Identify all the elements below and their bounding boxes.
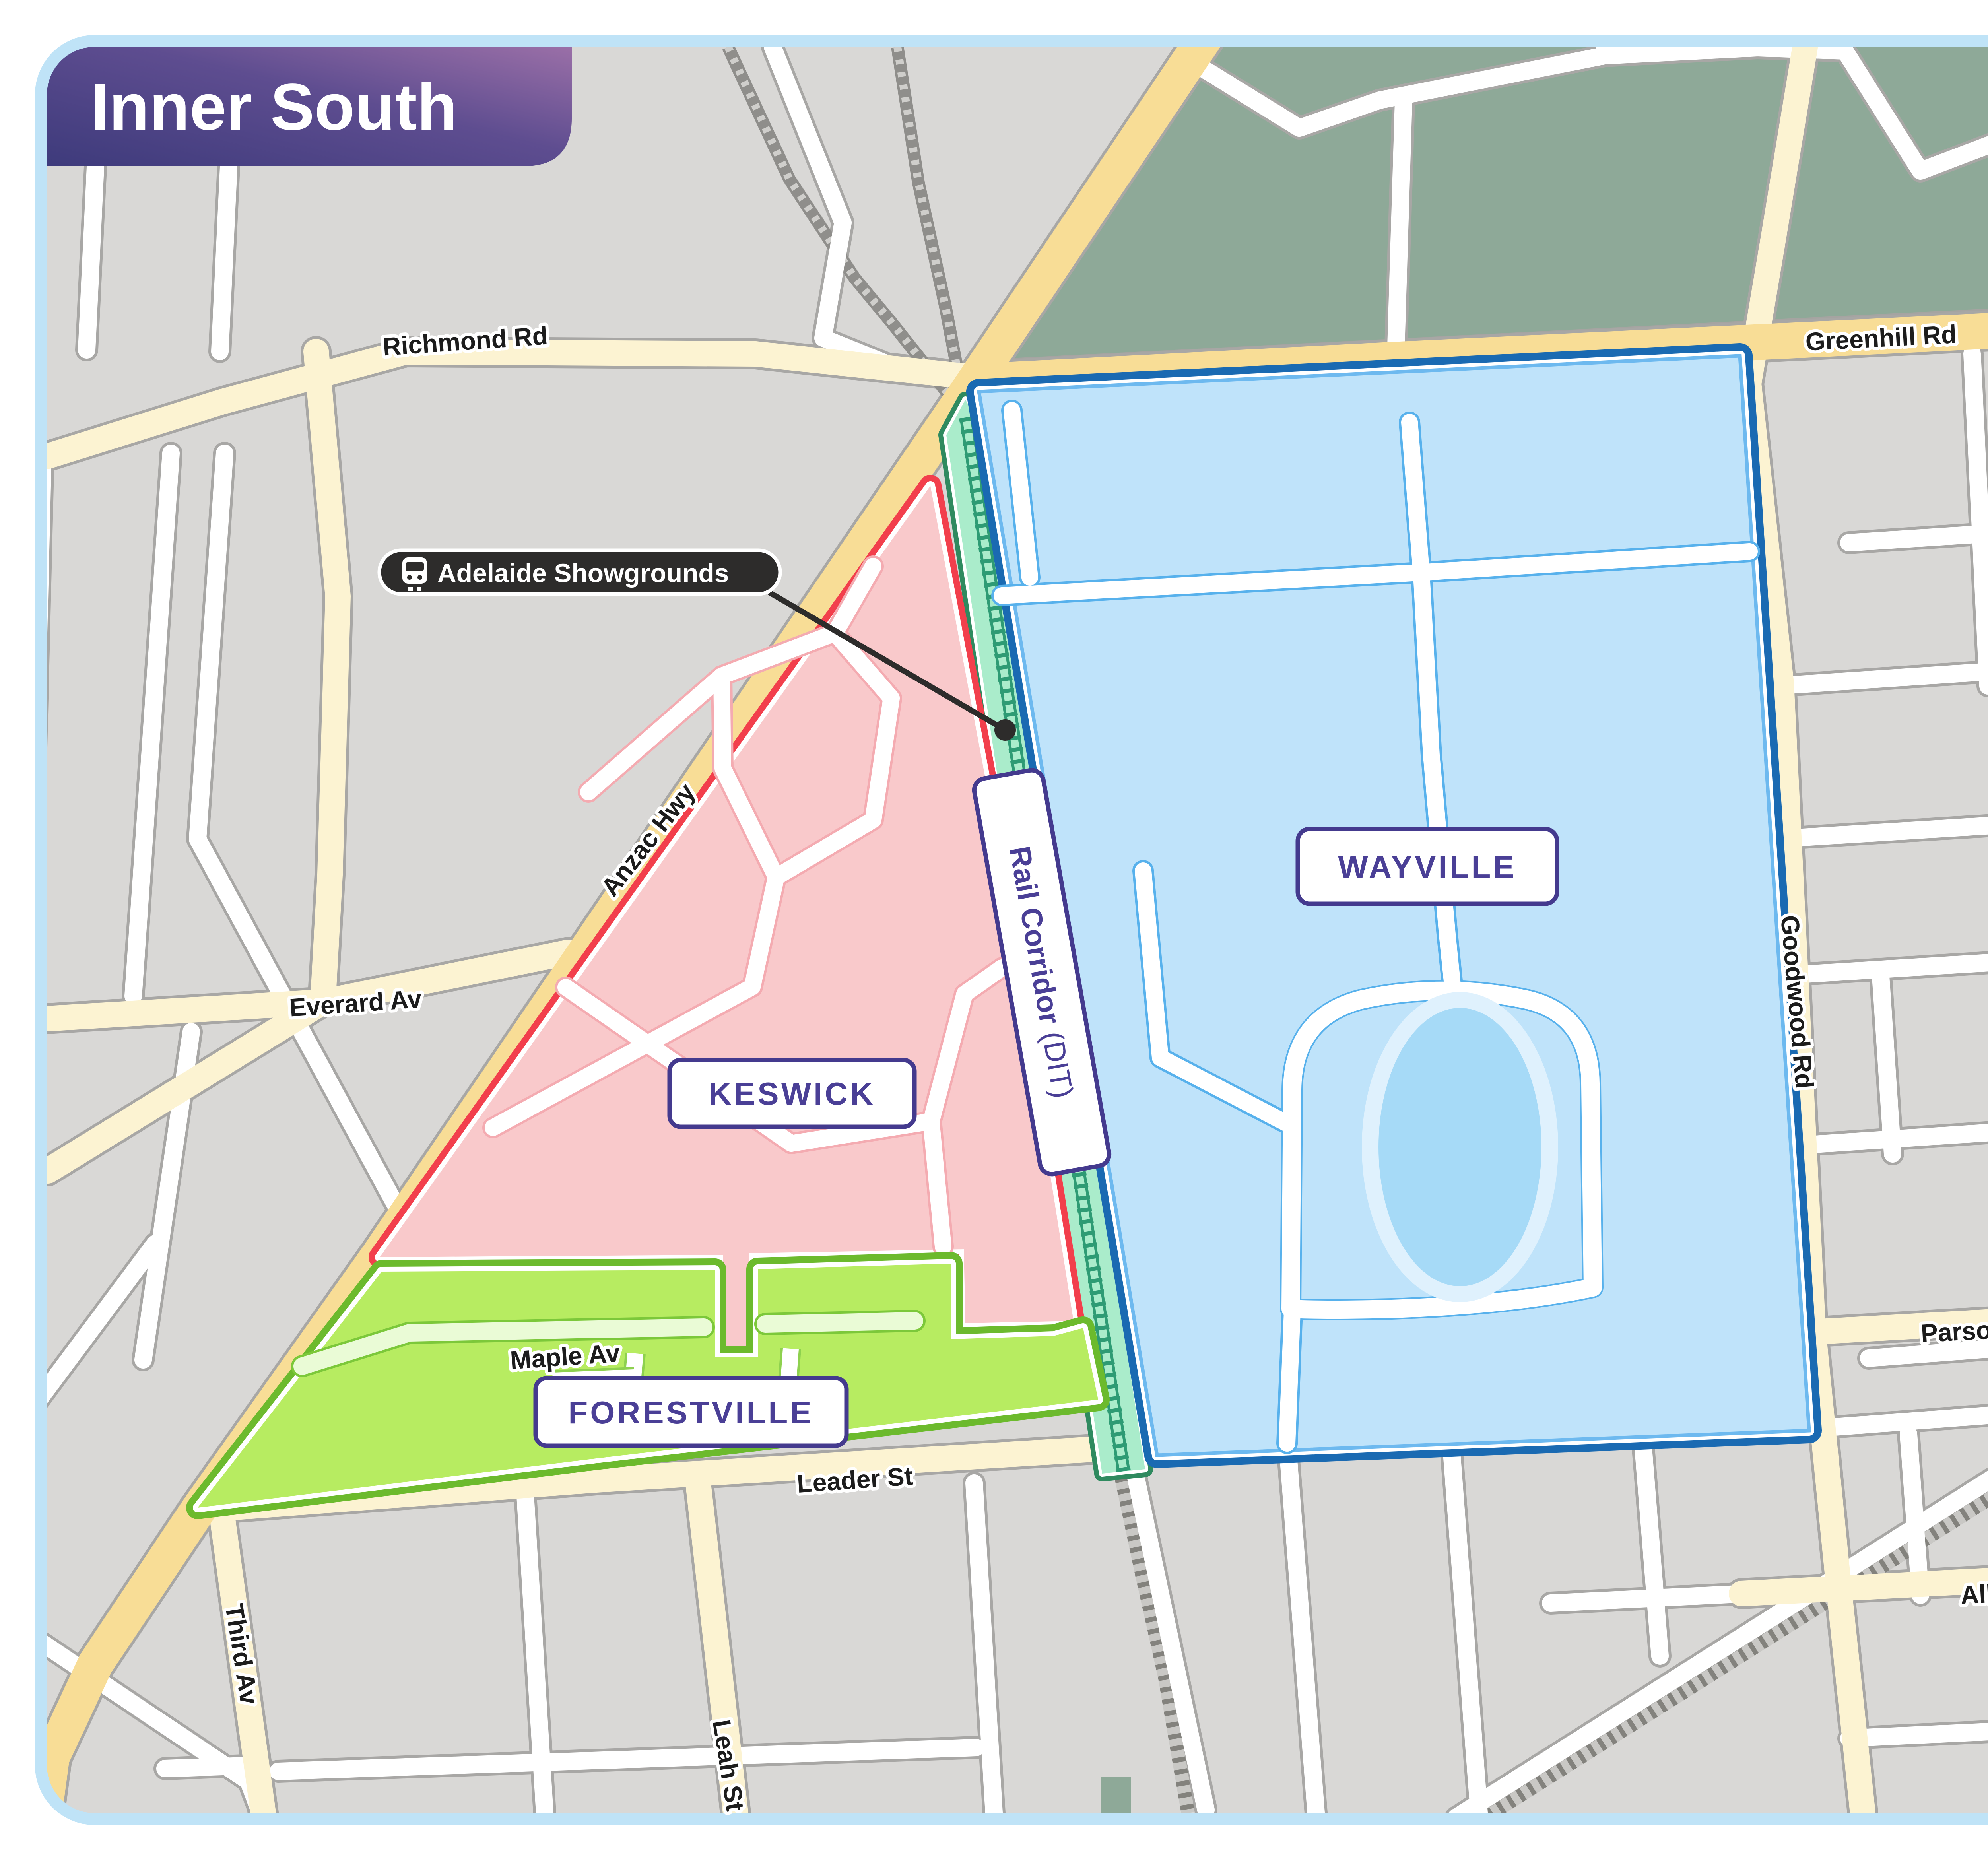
svg-text:WAYVILLE: WAYVILLE	[1338, 849, 1517, 885]
svg-text:Adelaide Showgrounds: Adelaide Showgrounds	[437, 558, 729, 588]
svg-text:KESWICK: KESWICK	[709, 1076, 876, 1111]
svg-text:Inner South: Inner South	[91, 70, 457, 144]
svg-text:FORESTVILLE: FORESTVILLE	[568, 1395, 813, 1430]
svg-text:Albert St: Albert St	[1960, 1575, 1988, 1610]
